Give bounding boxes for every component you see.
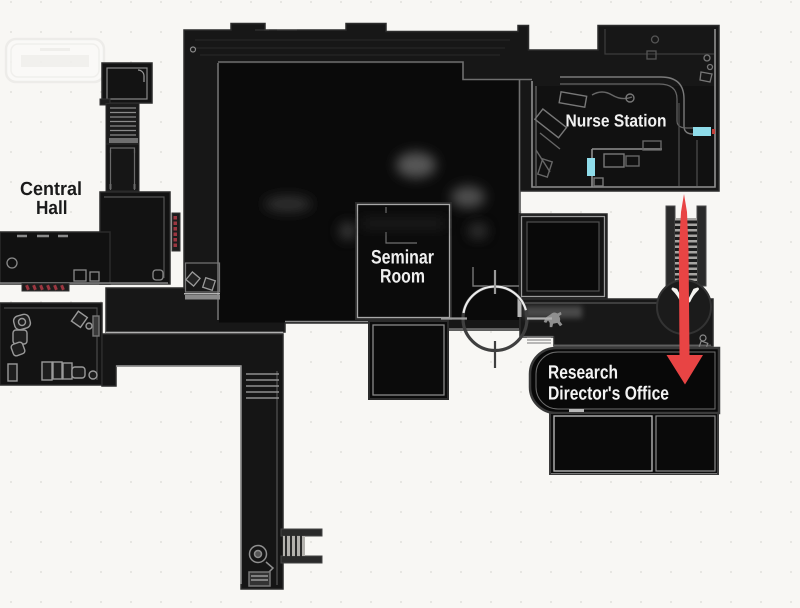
svg-text:Room: Room [380, 266, 425, 288]
svg-text:Research: Research [548, 363, 618, 384]
svg-text:Director's Office: Director's Office [548, 384, 669, 405]
svg-text:Nurse Station: Nurse Station [566, 111, 667, 131]
svg-text:Central: Central [20, 179, 82, 200]
svg-text:Hall: Hall [36, 198, 68, 219]
